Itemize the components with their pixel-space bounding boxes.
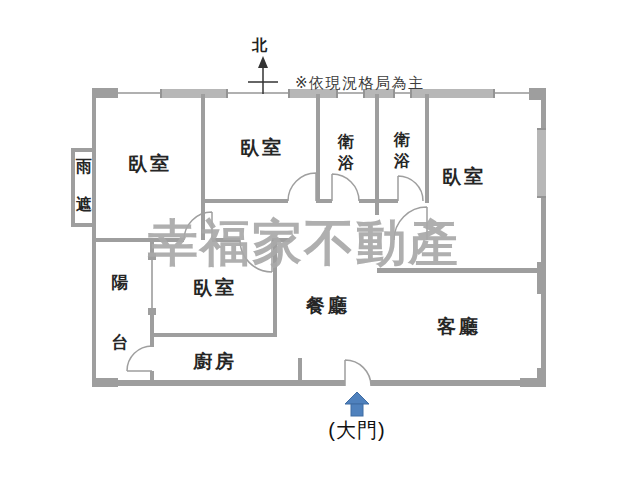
room-label-bedroom-top-mid: 臥室 [240,135,284,161]
room-label-bedroom-right: 臥室 [442,164,486,190]
wall-left-lower [92,222,96,386]
room-label-bedroom-lower: 臥室 [193,275,237,301]
wall-bedroom2-bath1 [316,94,320,202]
wall-bath2-bedroom3 [425,94,429,203]
door-arc-balcony [127,346,152,371]
window-balcony-cap-bottom [148,308,156,315]
north-arrow-icon [245,54,281,96]
window-right-bedroom [537,128,546,198]
room-label-rain-shield: 雨遮 [75,148,93,224]
column-bottom-left [92,378,118,387]
north-label: 北 [252,36,267,55]
room-label-bedroom-top-left: 臥室 [128,151,172,177]
disclaimer-text: ※依現況格局為主 [295,74,425,93]
wall-kitchen-stub [298,358,302,382]
wall-right-junction [537,262,546,294]
room-label-bathroom-left: 衛浴 [337,131,355,173]
wall-corridor-north-b [316,199,332,203]
room-label-dining: 餐廳 [306,293,350,319]
wall-bath1-bath2 [375,94,379,215]
room-label-balcony: 陽台 [110,253,130,373]
door-arc-bedroom2 [288,173,316,201]
wall-corridor-north-c [359,199,398,203]
door-arc-main [345,360,371,386]
wall-left-upper [92,91,96,152]
entrance-arrow-icon [343,392,373,417]
wall-bottom-left [92,380,345,386]
entrance-label: (大門) [328,417,385,444]
wall-balcony-b [150,315,154,347]
room-label-bathroom-right: 衛浴 [393,129,411,171]
wall-balcony-c [150,371,154,380]
agency-watermark: 幸福家不動產 [148,210,460,277]
room-label-kitchen: 廚房 [193,349,237,375]
window-top-1 [160,89,228,98]
door-arc-bath2 [398,176,423,201]
wall-corridor-north-a [205,199,288,203]
room-label-living: 客廳 [437,314,481,340]
wall-bedroom4-south [150,333,277,337]
column-bottom-right2 [520,378,546,387]
floor-plan: 雨遮 臥室 臥室 衛浴 衛浴 臥室 陽台 臥室 廚房 餐廳 客廳 幸福家不動產 … [0,0,640,480]
door-arc-bath1 [332,174,359,201]
